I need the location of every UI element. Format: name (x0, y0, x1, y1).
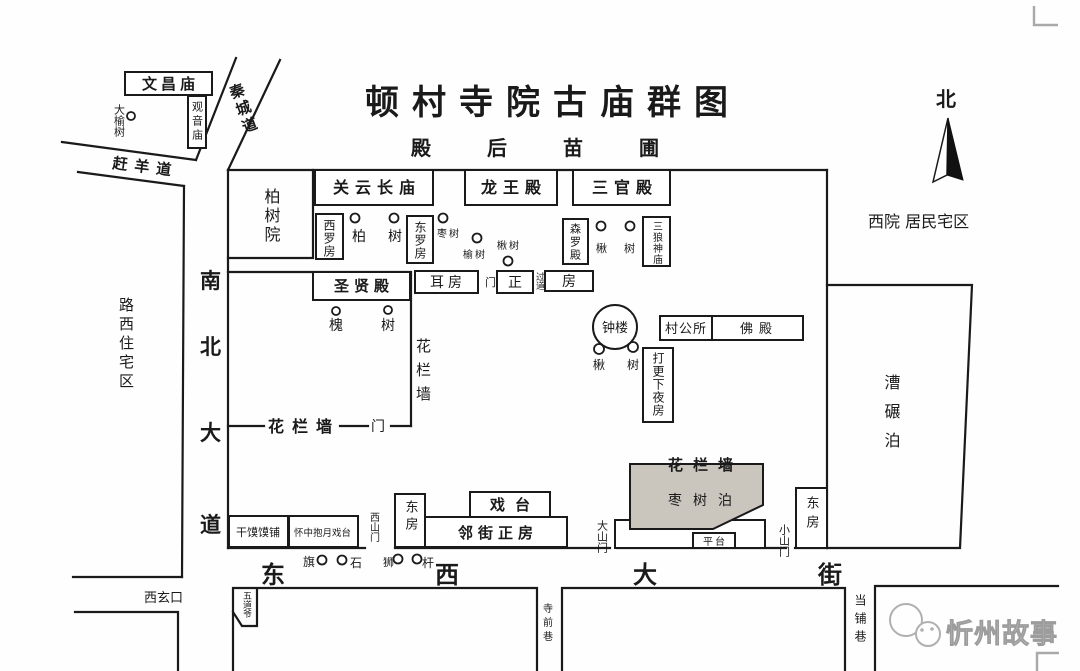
night-watch-room-label: 打更下夜房 (651, 352, 665, 417)
dongluo-room-label: 东罗房 (413, 221, 427, 260)
guanyunchang-temple-label: 关云长庙 (333, 178, 421, 197)
lion-mark (394, 555, 403, 564)
bai-tree-label: 柏 (352, 229, 366, 245)
north-label: 北 (936, 87, 956, 111)
street-char-dong: 东 (261, 561, 285, 589)
frame-corner-top-right (1034, 6, 1058, 25)
bai-tree-mark (351, 214, 360, 223)
shu-c-tree-label: 树 (381, 318, 395, 334)
rear-garden-label: 殿后苗圃 (410, 136, 715, 160)
huaizhong-stage-label: 怀中抱月戏台 (294, 527, 351, 539)
logo-face-eye-left (920, 628, 924, 632)
southwest-block-outline (75, 612, 178, 671)
logo-face-icon-small (916, 622, 940, 646)
stone-mark (338, 556, 347, 565)
yushu-tree-mark (473, 234, 482, 243)
flower-wall-east-label: 花栏墙 (414, 338, 432, 410)
platform-label: 平台 (703, 535, 727, 548)
flag-label: 旗 (303, 554, 315, 569)
big-elm-tree-mark (127, 112, 135, 120)
shu-a-tree-mark (390, 214, 399, 223)
wudaoye-label: 五道爷 (241, 591, 252, 619)
stage-label: 戏台 (489, 496, 540, 514)
west-yard-residential-label: 西院 居民宅区 (868, 212, 969, 231)
xixuankou-label: 西玄口 (144, 591, 183, 606)
passage-label: 过道 (534, 271, 545, 291)
xiluo-room-label: 西罗房 (322, 219, 336, 258)
flower-wall-zao-label: 花栏墙 (668, 456, 743, 474)
xinzhou-stories-logo: 忻州故事 (890, 604, 1058, 650)
village-office-label: 村公所 (665, 322, 707, 337)
shu-c-tree-mark (384, 306, 392, 314)
senluo-hall-label: 森罗殿 (569, 222, 582, 262)
street-front-house-label: 邻街正房 (457, 524, 538, 542)
pole-label: 杆 (422, 556, 434, 570)
small-gate-label: 小山门 (778, 524, 791, 558)
er-room-label: 耳房 (430, 275, 466, 291)
flag-pole-mark-1 (318, 556, 327, 565)
longwang-hall-label: 龙王殿 (480, 178, 547, 197)
nanbei-road-char-bei: 北 (200, 335, 221, 359)
qiushu-tree-mark (504, 257, 513, 266)
map-title: 顿村寺院古庙群图 (365, 83, 741, 123)
big-elm-label: 大榆树 (113, 103, 126, 138)
nanbei-road-char-nan: 南 (200, 269, 221, 293)
street-char-da: 大 (633, 561, 657, 589)
sanlang-temple-label: 三狼神庙 (651, 221, 663, 265)
logo-face-eye-right (930, 627, 934, 631)
east-room-west-label: 东房 (403, 500, 419, 534)
lion-label: 狮 (383, 556, 394, 569)
qiu-a-tree-label: 楸 (596, 241, 607, 255)
nanbei-road-char-da: 大 (200, 421, 221, 445)
great-gate-label: 大山门 (596, 519, 609, 554)
zheng-room-right-label: 房 (562, 274, 576, 290)
huai-tree-mark (332, 307, 340, 315)
south-block-b-outline (562, 588, 845, 671)
east-room-east-label: 东房 (804, 496, 820, 534)
bell-tower-label: 钟楼 (602, 320, 628, 336)
guanyin-temple-label: 观音庙 (191, 101, 204, 143)
frame-corner-bottom-right (1037, 653, 1059, 671)
shu-a-tree-label: 树 (388, 229, 402, 245)
wenchang-temple-label: 文昌庙 (142, 75, 199, 93)
temple-map-page: 忻州故事 顿村寺院古庙群图 殿后苗圃 北 西院 居民宅区 文昌庙 赶羊道 关云长… (0, 0, 1080, 671)
flower-wall-gate-label: 门 (371, 419, 385, 435)
south-block-a-outline (233, 588, 537, 671)
zheng-room-left-label: 正 (508, 275, 522, 291)
street-char-jie: 街 (817, 561, 842, 589)
flower-wall-south-label: 花栏墙 (268, 417, 340, 436)
map-canvas: 忻州故事 顿村寺院古庙群图 殿后苗圃 北 西院 居民宅区 文昌庙 赶羊道 关云长… (0, 0, 1080, 671)
sanguan-hall-label: 三官殿 (592, 178, 658, 197)
caonian-po-label: 漕碾泊 (882, 374, 901, 461)
nanbei-road-char-dao: 道 (200, 513, 221, 537)
zaoshu-tree-mark (439, 214, 448, 223)
compass-needle-west-half (933, 118, 948, 182)
shu-b-tree-mark (626, 222, 635, 231)
yushu-tree-label: 榆树 (463, 248, 487, 261)
street-char-xi: 西 (435, 561, 459, 589)
shengxian-hall-label: 圣贤殿 (333, 277, 394, 295)
qiushu-tree-label: 楸树 (497, 239, 521, 252)
watermark-text: 忻州故事 (946, 619, 1058, 650)
west-gate-label: 西山门 (368, 512, 380, 543)
shu-d-tree-label: 树 (627, 357, 639, 372)
baishu-yard-label: 柏树院 (262, 188, 281, 245)
qincheng-road-label: 秦城道 (225, 80, 261, 138)
siqian-lane-label: 寺前巷 (541, 603, 553, 645)
flag-pole-mark-2 (413, 555, 422, 564)
huai-tree-label: 槐 (329, 318, 343, 334)
compass-needle-east-half (947, 118, 963, 180)
shu-b-tree-label: 树 (624, 241, 635, 255)
stone-label: 石 (350, 556, 362, 570)
nanbei-road-west-line (182, 186, 184, 577)
ganmomo-shop-label: 干馍馍铺 (236, 526, 280, 539)
dangpu-lane-label: 当铺巷 (853, 594, 867, 648)
luxi-residential-label: 路西住宅区 (117, 297, 135, 392)
buddha-hall-label: 佛殿 (740, 322, 778, 337)
qiu-b-tree-label: 楸 (593, 357, 605, 372)
ganyang-road-label: 赶羊道 (111, 154, 180, 180)
gate-small-label: 门 (485, 275, 496, 289)
qiu-a-tree-mark (597, 222, 606, 231)
zaoshu-po-label: 枣树泊 (668, 493, 743, 509)
zaoshu-tree-label: 枣树 (437, 227, 461, 240)
